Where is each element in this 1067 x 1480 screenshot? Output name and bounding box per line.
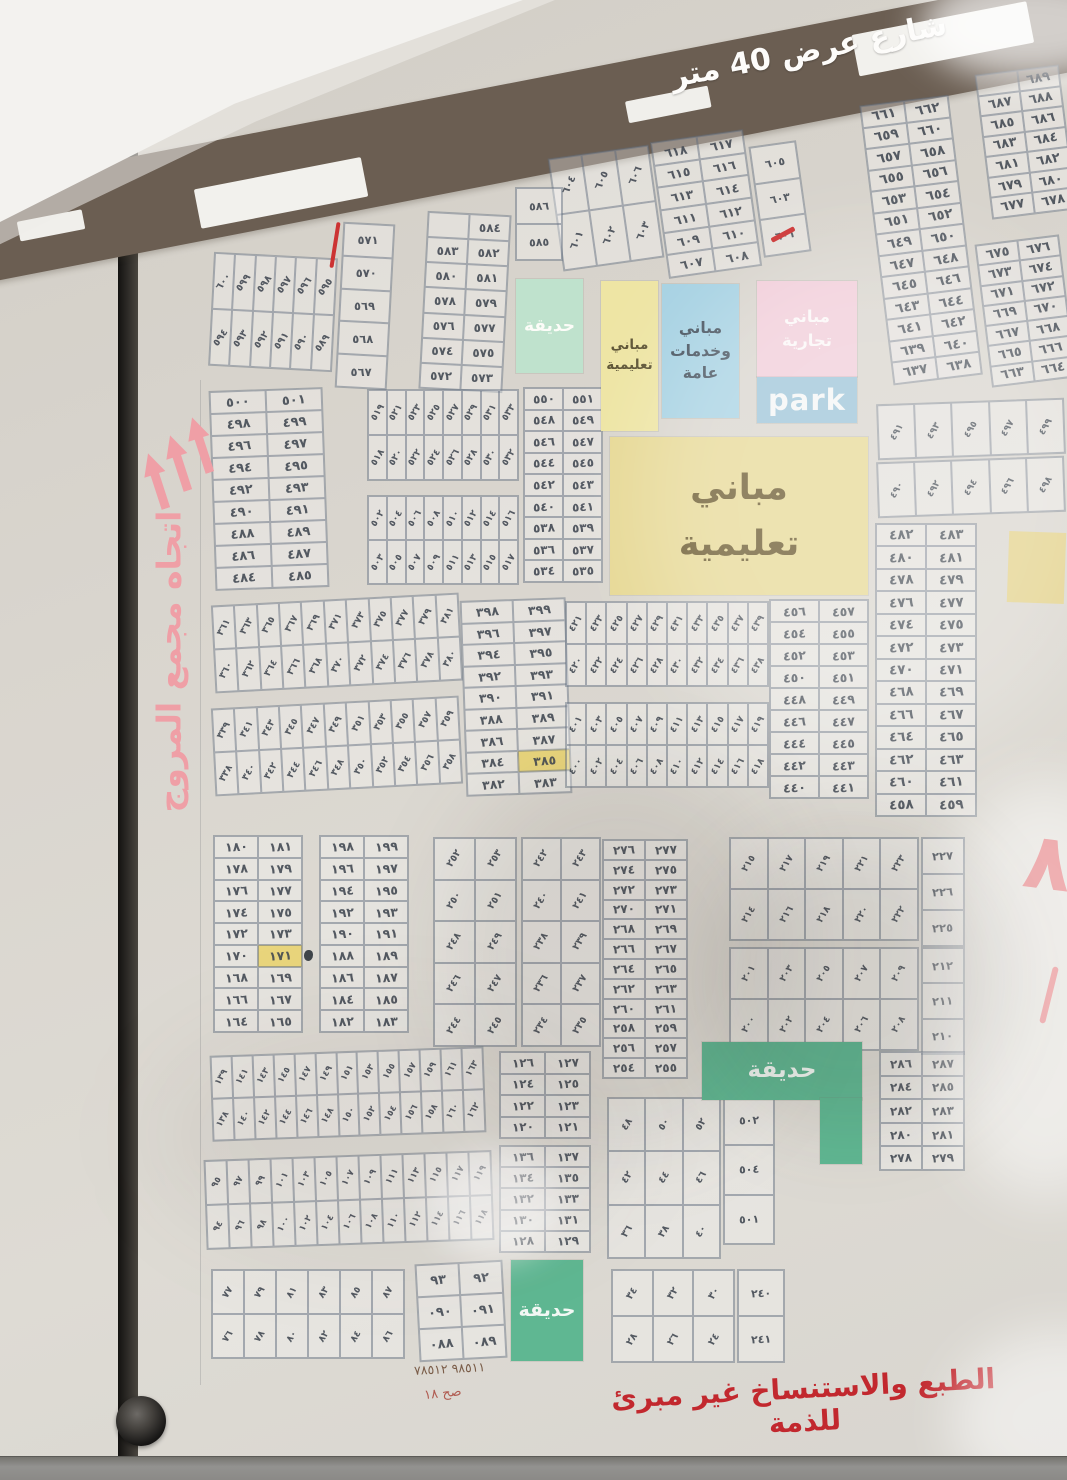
- plot-cell: ٦٦٤: [1032, 356, 1067, 381]
- plot-cell: ٣٨٣: [519, 771, 572, 794]
- legend-services-block: مباني وخدمات عامة: [662, 284, 739, 418]
- plot-cell: ٣٤٤: [281, 748, 306, 792]
- plot-cell: ٢٦٤: [603, 959, 645, 979]
- plot-cell: ٨٥: [340, 1270, 372, 1314]
- plot-cell: ٥٨٤: [468, 214, 510, 241]
- plot-cell: ١٩٩: [364, 836, 408, 858]
- plot-cell: ٦٧٧: [991, 193, 1035, 218]
- plot-cell: ٥٤٦: [524, 431, 563, 453]
- plot-cell: ٤٥٨: [876, 794, 926, 816]
- plot-cell: ١٣١: [545, 1210, 590, 1231]
- plot-cell: ٤٤٨: [770, 688, 819, 710]
- plot-cell: ٥٤٩: [563, 410, 602, 432]
- plot-cell: ٤٨٠: [876, 546, 926, 568]
- plot-cell: ٨١: [276, 1270, 308, 1314]
- plot-cell: ٣٧٨: [415, 638, 440, 682]
- plot-cell: ٣٤٨: [326, 745, 351, 789]
- plot-cell: ١٥٢: [358, 1093, 380, 1136]
- plot-cell: ٩٨: [250, 1203, 274, 1248]
- plot-cell: ٥٢٥: [424, 390, 443, 435]
- plot-cell: ١٨٥: [364, 988, 408, 1010]
- plot-cell: ٣٨٧: [517, 727, 570, 750]
- park-english-label: park: [768, 379, 846, 421]
- plot-cell: ٥٧٠: [341, 256, 393, 291]
- grid-200s-strips: ٢٠١٢٠٣٢٠٥٢٠٧٢٠٩٢٠٠٢٠٢٢٠٤٢٠٦٢٠٨: [730, 948, 918, 1050]
- plot-cell: ١٠٦: [338, 1200, 362, 1245]
- plot-cell: ٤٩٨: [210, 412, 267, 436]
- plot-cell: ١٠٨: [360, 1199, 384, 1244]
- plot-cell: ٥٨٦: [516, 188, 562, 224]
- plot-cell: ٤٣١: [667, 602, 687, 644]
- plot-cell: ٣٨٥: [518, 749, 571, 772]
- plot-cell: ٨٣: [308, 1270, 340, 1314]
- grid-230s-strips: ٢٤٢٢٤٣٢٤٠٢٤١٢٣٨٢٣٩٢٣٦٢٣٧٢٣٤٢٣٥: [522, 838, 600, 1046]
- plot-cell: ٣٤٩: [324, 702, 349, 746]
- plot-cell: ٢٤٩: [475, 921, 516, 963]
- plot-cell: ٥٢٩: [462, 390, 481, 435]
- plot-cell: ٥١٣: [462, 540, 481, 584]
- plot-cell: ١٤٦: [296, 1095, 318, 1138]
- plot-cell: ٠٨٨: [419, 1327, 464, 1361]
- plot-cell: ٤٢٥: [606, 602, 626, 644]
- plot-cell: ١٥٥: [378, 1050, 400, 1093]
- grid-130s: ١٣٦١٣٧١٣٤١٣٥١٣٢١٣٣١٣٠١٣١١٢٨١٢٩: [500, 1146, 590, 1252]
- plot-cell: ١٩٤: [320, 880, 364, 902]
- plot-cell: ٩٤: [206, 1204, 230, 1249]
- plot-cell: ٥٦٧: [336, 354, 388, 389]
- plot-cell: ١٧٧: [258, 880, 302, 902]
- plot-cell: ١٨٤: [320, 988, 364, 1010]
- plot-cell: ٢٦٣: [645, 979, 687, 999]
- plot-cell: ٢٧٦: [603, 840, 645, 860]
- plot-cell: ٤٩٣: [914, 403, 953, 458]
- plot-cell: ٤٩٥: [268, 454, 325, 478]
- plot-cell: ٤١٥: [707, 703, 727, 745]
- plot-cell: ١٠٠: [272, 1202, 296, 1247]
- plot-cell: ٢٧٢: [603, 880, 645, 900]
- plot-cell: ١٥٤: [379, 1092, 401, 1135]
- grid-580s: ٥٨٤٥٨٣٥٨٢٥٨٠٥٨١٥٧٨٥٧٩٥٧٦٥٧٧٥٧٤٥٧٥٥٧٢٥٧٣: [419, 212, 510, 392]
- plot-cell: ١٧١: [258, 945, 302, 967]
- plot-cell: ٤٠٧: [627, 703, 647, 745]
- plot-cell: ٤٦٢: [876, 749, 926, 771]
- plot-cell: ٥٧٩: [464, 289, 506, 316]
- plot-cell: ٢٤٢: [522, 838, 561, 880]
- plot-cell: ٥١٤: [481, 496, 500, 540]
- plot-cell: ١١٦: [448, 1196, 472, 1241]
- plot-cell: ٥٢٨: [462, 435, 481, 480]
- plot-cell: ٤٠٢: [586, 745, 606, 787]
- plot-cell: ١٣٤: [500, 1167, 545, 1188]
- plot-cell: ٥١١: [443, 540, 462, 584]
- plot-cell: ٦٠٨: [712, 242, 761, 271]
- plot-cell: ٤١٩: [748, 703, 768, 745]
- plot-cell: ١٨٨: [320, 945, 364, 967]
- plot-cell: ٤٠: [683, 1205, 720, 1258]
- plot-cell: ٥٣٧: [563, 539, 602, 561]
- plot-cell: ٣٥١: [346, 701, 371, 745]
- plot-cell: ١٠٩: [358, 1155, 382, 1200]
- plot-cell: ٤٤٥: [819, 732, 868, 754]
- plot-cell: ١٢٣: [545, 1095, 590, 1117]
- plot-cell: ٥٢٦: [443, 435, 462, 480]
- plot-cell: ٤٦٥: [926, 726, 976, 748]
- plot-cell: ٥٧٨: [423, 287, 465, 314]
- plot-cell: ٥٠٩: [424, 540, 443, 584]
- plot-cell: ٤٧٤: [876, 614, 926, 636]
- plot-cell: ١٢١: [545, 1117, 590, 1139]
- plot-cell: ٢٦١: [645, 999, 687, 1019]
- plot-cell: ٤٥٧: [819, 600, 868, 622]
- grid-88-93: ٩٣٩٢٠٩٠٠٩١٠٨٨٠٨٩: [416, 1261, 507, 1361]
- plot-cell: ١٠٣: [292, 1157, 316, 1202]
- plot-cell: ٢٤٧: [475, 963, 516, 1005]
- plot-cell: ٤٧٢: [876, 636, 926, 658]
- plot-cell: ٥٤٥: [563, 453, 602, 475]
- plot-cell: ٤٢٧: [627, 602, 647, 644]
- plot-cell: ٣٩٣: [515, 663, 568, 686]
- plot-cell: ٤٨٦: [215, 544, 272, 568]
- plot-cell: ١٦٧: [258, 988, 302, 1010]
- plot-cell: ٤٢٢: [586, 644, 606, 686]
- plot-cell: ٥٢١: [387, 390, 406, 435]
- plot-cell: ٤٨٥: [272, 564, 329, 588]
- plot-cell: ٤١١: [667, 703, 687, 745]
- plot-cell: ٣٦٦: [281, 645, 306, 689]
- plot-cell: ٤٦٣: [926, 749, 976, 771]
- plot-cell: ٢٤١: [738, 1316, 784, 1362]
- plot-cell: ٢٨٠: [880, 1123, 922, 1147]
- plot-cell: ٣٦٠: [214, 648, 239, 692]
- plot-cell: ٣٦٩: [301, 601, 326, 645]
- plot-cell: ٤٩٦: [989, 458, 1028, 513]
- plot-cell: ٤٣٧: [728, 602, 748, 644]
- plot-cell: ٦٧٨: [1032, 188, 1067, 213]
- plot-cell: ٤٤٤: [770, 732, 819, 754]
- plot-cell: ٢٥٨: [603, 1019, 645, 1039]
- plot-cell: ١٢٥: [545, 1074, 590, 1096]
- plot-cell: ٢٤٥: [475, 1004, 516, 1046]
- plot-cell: ٢٣٩: [561, 921, 600, 963]
- plot-cell: ٤٧٩: [926, 569, 976, 591]
- plot-cell: ٣٢: [653, 1270, 694, 1316]
- plot-cell: ٣٨١: [435, 594, 460, 638]
- plot-cell: ٤١٨: [748, 745, 768, 787]
- plot-cell: ٤٧٠: [876, 659, 926, 681]
- plot-cell: ٤٨٨: [214, 522, 271, 546]
- plot-cell: ٢٥١: [475, 880, 516, 922]
- plot-cell: ٤٢٠: [566, 644, 586, 686]
- plot-cell: ٣٤٠: [236, 750, 261, 794]
- plot-cell: ٤٥٩: [926, 794, 976, 816]
- plot-cell: ٤٧٥: [926, 614, 976, 636]
- plot-cell: ٢٦٢: [603, 979, 645, 999]
- plot-cell: ٤١٤: [707, 745, 727, 787]
- plot-cell: ٤٨٣: [926, 524, 976, 546]
- plot-cell: ٤٠٠: [566, 745, 586, 787]
- grid-380s-390s: ٣٩٨٣٩٩٣٩٦٣٩٧٣٩٤٣٩٥٣٩٢٣٩٣٣٩٠٣٩١٣٨٨٣٨٩٣٨٦٣…: [461, 598, 572, 796]
- plot-cell: ١٦٦: [214, 988, 258, 1010]
- plot-cell: ١٣٩: [211, 1056, 233, 1099]
- plot-cell: ٢٨١: [922, 1123, 964, 1147]
- plot-cell: ٥١٨: [368, 435, 387, 480]
- plot-cell: ٤٩٧: [989, 400, 1028, 455]
- plot-cell: ٥٠٢: [368, 496, 387, 540]
- plot-cell: ٩٧: [227, 1159, 251, 1204]
- plot-cell: ٥٧٧: [463, 315, 505, 342]
- plot-cell: ٤٢٦: [627, 644, 647, 686]
- plot-cell: ٤٢٨: [647, 644, 667, 686]
- plot-cell: ١٨٣: [364, 1010, 408, 1032]
- plot-cell: ١٦٥: [258, 1010, 302, 1032]
- plot-cell: ٣٦٥: [257, 603, 282, 647]
- plot-cell: ١٧٣: [258, 923, 302, 945]
- plot-cell: ٢٨٢: [880, 1099, 922, 1123]
- plot-cell: ٢١٠: [922, 1019, 964, 1054]
- plot-cell: ٥٥١: [563, 388, 602, 410]
- plot-cell: ١٧٢: [214, 923, 258, 945]
- plot-cell: ٤٤٣: [819, 754, 868, 776]
- plot-cell: ٤٩٦: [211, 434, 268, 458]
- plot-cell: ٥٤٠: [524, 496, 563, 518]
- plot-cell: ٤٨٤: [216, 566, 273, 590]
- plot-cell: ٥٠٠: [210, 390, 267, 414]
- plot-cell: ٦٠٧: [667, 249, 716, 278]
- plot-cell: ٤٦: [683, 1151, 720, 1204]
- plot-cell: ١٤٢: [254, 1097, 276, 1140]
- grid-660s-670s: ٦٧٥٦٧٦٦٧٣٦٧٤٦٧١٦٧٢٦٦٩٦٧٠٦٦٧٦٦٨٦٦٥٦٦٦٦٦٣٦…: [976, 235, 1067, 386]
- grid-490s-right-b: ٤٩٠٤٩٢٤٩٤٤٩٦٤٩٨: [877, 457, 1065, 517]
- plot-cell: ١٧٩: [258, 858, 302, 880]
- grid-90s-110s-strips: ٩٥٩٧٩٩١٠١١٠٣١٠٥١٠٧١٠٩١١١١١٣١١٥١١٧١١٩٩٤٩٦…: [205, 1151, 494, 1249]
- plot-cell: ٤٧١: [926, 659, 976, 681]
- plot-cell: ٤٨١: [926, 546, 976, 568]
- plot-cell: ٤٢٤: [606, 644, 626, 686]
- park-english-block: park: [757, 377, 857, 423]
- plot-cell: ٣٦٣: [234, 604, 259, 648]
- plot-cell: ٤٦٧: [926, 704, 976, 726]
- plot-cell: ٥٠٣: [368, 540, 387, 584]
- plot-cell: ٢٤٤: [434, 1004, 475, 1046]
- plot-cell: ٧٩: [244, 1270, 276, 1314]
- plot-map-photo: شارع عرض 40 متر ٦٠٤٦٠٥٦٠٦٦٠١٦٠٢٦٠٣٦١٨٦١٧…: [0, 0, 1067, 1480]
- plot-cell: ١١٧: [446, 1152, 470, 1197]
- plot-cell: ٤٤: [645, 1151, 682, 1204]
- plot-cell: ١٦٢: [463, 1089, 485, 1132]
- plot-cell: ٤٥٤: [770, 622, 819, 644]
- plot-cell: ٤٠٥: [606, 703, 626, 745]
- plot-cell: ٤٥٥: [819, 622, 868, 644]
- plot-cell: ٢٥٤: [603, 1058, 645, 1078]
- plot-cell: ٦٠٦: [615, 146, 656, 206]
- plot-cell: ٦٣٧: [892, 358, 938, 385]
- plot-cell: ٣٥٨: [437, 740, 462, 784]
- plot-cell: ٤٩٨: [1026, 457, 1065, 512]
- plot-cell: ١٤٥: [273, 1054, 295, 1097]
- education-zone-label: مباني تعليمية: [679, 460, 799, 572]
- plot-cell: ٣٧٢: [348, 641, 373, 685]
- plot-cell: ٥٣٤: [524, 560, 563, 582]
- plot-cell: ٣٧١: [324, 599, 349, 643]
- plot-cell: ٤٧٧: [926, 591, 976, 613]
- plot-cell: ٩٣: [416, 1263, 461, 1297]
- legend-park-label: حديقة: [524, 314, 575, 339]
- plot-cell: ٦٠٣: [622, 201, 663, 261]
- plot-cell: ٢٧٤: [603, 860, 645, 880]
- plot-cell: ١٦٣: [462, 1047, 484, 1090]
- plot-cell: ٣٩١: [516, 684, 569, 707]
- direction-label: اتجاه مجمع المروج: [150, 502, 189, 822]
- plot-cell: ١٨٢: [320, 1010, 364, 1032]
- plot-cell: ٥٧٦: [422, 312, 464, 339]
- board-frame-bottom: [0, 1456, 1067, 1480]
- plot-cell: ٢٤: [693, 1316, 734, 1362]
- plot-cell: ٢١١: [922, 983, 964, 1018]
- plot-cell: ٣٩٢: [463, 665, 516, 688]
- grid-240-241-cells: ٢٤٠٢٤١: [738, 1270, 784, 1362]
- grid-500s-strips: ٥٠٢٥٠٤٥٠٦٥٠٨٥١٠٥١٢٥١٤٥١٦٥٠٣٥٠٥٥٠٧٥٠٩٥١١٥…: [368, 496, 518, 584]
- plot-cell: ٤٤٢: [770, 754, 819, 776]
- plot-cell: ١٣٨: [212, 1098, 234, 1141]
- plot-cell: ٣٩٠: [464, 686, 517, 709]
- plot-cell: ٢١٢: [922, 948, 964, 983]
- plot-cell: ٢٤٦: [434, 963, 475, 1005]
- plot-cell: ٥٧١: [343, 223, 395, 258]
- grid-120s: ١٢٦١٢٧١٢٤١٢٥١٢٢١٢٣١٢٠١٢١: [500, 1052, 590, 1138]
- plot-cell: ٥١٩: [368, 390, 387, 435]
- plot-cell: ٤٠٣: [586, 703, 606, 745]
- plot-cell: ٢٨٤: [880, 1076, 922, 1100]
- plot-cell: ١٦٠: [442, 1090, 464, 1133]
- plot-cell: ١٦٤: [214, 1010, 258, 1032]
- plot-cell: ٥٧٣: [460, 365, 502, 392]
- plot-cell: ٤٣٠: [667, 644, 687, 686]
- plot-cell: ١٥٦: [400, 1091, 422, 1134]
- plot-cell: ٥٨٣: [426, 237, 468, 264]
- plot-cell: ٩٥: [205, 1160, 229, 1205]
- plot-cell: ٤٧٨: [876, 569, 926, 591]
- plot-cell: ١٢٧: [545, 1052, 590, 1074]
- plot-cell: ٧٧: [212, 1270, 244, 1314]
- grid-40s-50s-strips: ٤٨٥٠٥٢٤٢٤٤٤٦٣٦٣٨٤٠: [608, 1098, 720, 1258]
- plot-cell: ٣٦١: [212, 605, 237, 649]
- plot-cell: ٤٧٦: [876, 591, 926, 613]
- plot-cell: ٤٦٦: [876, 704, 926, 726]
- plot-cell: ١١١: [380, 1154, 404, 1199]
- plot-cell: ١٧٨: [214, 858, 258, 880]
- plot-cell: ٢٨٥: [922, 1076, 964, 1100]
- plot-cell: ٥٠١: [724, 1195, 774, 1244]
- plot-cell: ٤٦٩: [926, 681, 976, 703]
- plot-cell: ١٨٩: [364, 945, 408, 967]
- plot-cell: ٤٢: [608, 1151, 645, 1204]
- plot-cell: ٢٨: [612, 1316, 653, 1362]
- plot-cell: ٤٩٣: [269, 476, 326, 500]
- plot-cell: ١٥١: [336, 1052, 358, 1095]
- plot-cell: ٥١٠: [443, 496, 462, 540]
- plot-cell: ٤١٦: [728, 745, 748, 787]
- grid-278-287: ٢٨٦٢٨٧٢٨٤٢٨٥٢٨٢٢٨٣٢٨٠٢٨١٢٧٨٢٧٩: [880, 1052, 964, 1170]
- plot-cell: ١٦١: [441, 1048, 463, 1091]
- plot-cell: ٣٤٥: [279, 705, 304, 749]
- plot-cell: ١٩٢: [320, 901, 364, 923]
- plot-cell: ٤٨٢: [876, 524, 926, 546]
- plot-cell: ٤٣٦: [728, 644, 748, 686]
- plot-cell: ٥٤٧: [563, 431, 602, 453]
- plot-cell: ٢٣٧: [561, 963, 600, 1005]
- grid-600s-cells: ٦٠٥٦٠٣٦٠١: [750, 141, 811, 256]
- plot-cell: ٢٤٣: [561, 838, 600, 880]
- plot-cell: ٢٠٧: [843, 948, 881, 999]
- plot-cell: ١٢٩: [545, 1231, 590, 1252]
- plot-cell: ٢١٧: [768, 838, 806, 889]
- plot-cell: ٥٨٩: [311, 314, 334, 371]
- legend-education-label: مباني تعليمية: [606, 336, 652, 375]
- plot-cell: ١٦٨: [214, 967, 258, 989]
- plot-cell: ١٨٦: [320, 967, 364, 989]
- plot-cell: ١٩٨: [320, 836, 364, 858]
- plot-cell: ٢٦٩: [645, 919, 687, 939]
- plot-cell: ٥٢٣: [406, 390, 425, 435]
- plot-cell: ٣٠: [693, 1270, 734, 1316]
- grid-420s-430s-strips: ٤٢١٤٢٣٤٢٥٤٢٧٤٢٩٤٣١٤٣٣٤٣٥٤٣٧٤٣٩٤٢٠٤٢٢٤٢٤٤…: [566, 602, 768, 686]
- plot-cell: ٥١٢: [462, 496, 481, 540]
- plot-cell: ٥٣٥: [563, 560, 602, 582]
- grid-440s-450s: ٤٥٦٤٥٧٤٥٤٤٥٥٤٥٢٤٥٣٤٥٠٤٥١٤٤٨٤٤٩٤٤٦٤٤٧٤٤٤٤…: [770, 600, 868, 798]
- plot-cell: ٥٢٧: [443, 390, 462, 435]
- plot-cell: ٢٦٧: [645, 939, 687, 959]
- grid-340s-350s-strips: ٣٣٩٣٤١٣٤٣٣٤٥٣٤٧٣٤٩٣٥١٣٥٣٣٥٥٣٥٧٣٥٩٣٣٨٣٤٠٣…: [212, 697, 462, 796]
- plot-cell: ٤٤٠: [770, 776, 819, 798]
- education-zone-block: مباني تعليمية: [610, 437, 868, 595]
- plot-cell: ٨٤: [340, 1314, 372, 1358]
- plot-cell: ٥٣٦: [524, 539, 563, 561]
- plot-cell: ٠٨٩: [462, 1325, 507, 1359]
- plot-cell: ٢٣٨: [522, 921, 561, 963]
- plot-cell: ٣٤٢: [259, 749, 284, 793]
- plot-cell: ٤٩٤: [951, 459, 990, 514]
- grid-240s-strips: ٢٥٢٢٥٣٢٥٠٢٥١٢٤٨٢٤٩٢٤٦٢٤٧٢٤٤٢٤٥: [434, 838, 516, 1046]
- plot-cell: ١١٣: [402, 1153, 426, 1198]
- plot-cell: ١٣٣: [545, 1188, 590, 1209]
- plot-cell: ٣٥٦: [415, 741, 440, 785]
- plot-cell: ٢٣٦: [522, 963, 561, 1005]
- plot-cell: ٣٩٦: [461, 622, 514, 645]
- plot-cell: ٤٠٩: [647, 703, 667, 745]
- plot-cell: ٤٤١: [819, 776, 868, 798]
- plot-cell: ١٤١: [232, 1055, 254, 1098]
- plot-cell: ٤٦٤: [876, 726, 926, 748]
- plot-cell: ٢٥٥: [645, 1058, 687, 1078]
- plot-cell: ٣٦٢: [236, 647, 261, 691]
- plot-cell: ٢٧١: [645, 900, 687, 920]
- plot-cell: ٤٦٨: [876, 681, 926, 703]
- plot-cell: ٣٦٨: [303, 644, 328, 688]
- plot-cell: ٥١٧: [499, 540, 518, 584]
- plot-cell: ٥٦٩: [339, 288, 391, 323]
- plot-cell: ٤٥٠: [770, 666, 819, 688]
- plot-cell: ١٩١: [364, 923, 408, 945]
- park-zone-right-arm: [820, 1098, 862, 1164]
- plot-cell: ١٢٢: [500, 1095, 545, 1117]
- grid-20s-30s-strips: ٣٤٣٢٣٠٢٨٢٦٢٤: [612, 1270, 734, 1362]
- plot-cell: ٣٥٤: [393, 742, 418, 786]
- plot-cell: ٥٠٤: [724, 1145, 774, 1194]
- plot-cell: ٨٧: [372, 1270, 404, 1314]
- plot-cell: ٤٢٣: [586, 602, 606, 644]
- plot-cell: ٥٣٢: [499, 435, 518, 480]
- park-zone-bottom: حديقة: [511, 1260, 583, 1361]
